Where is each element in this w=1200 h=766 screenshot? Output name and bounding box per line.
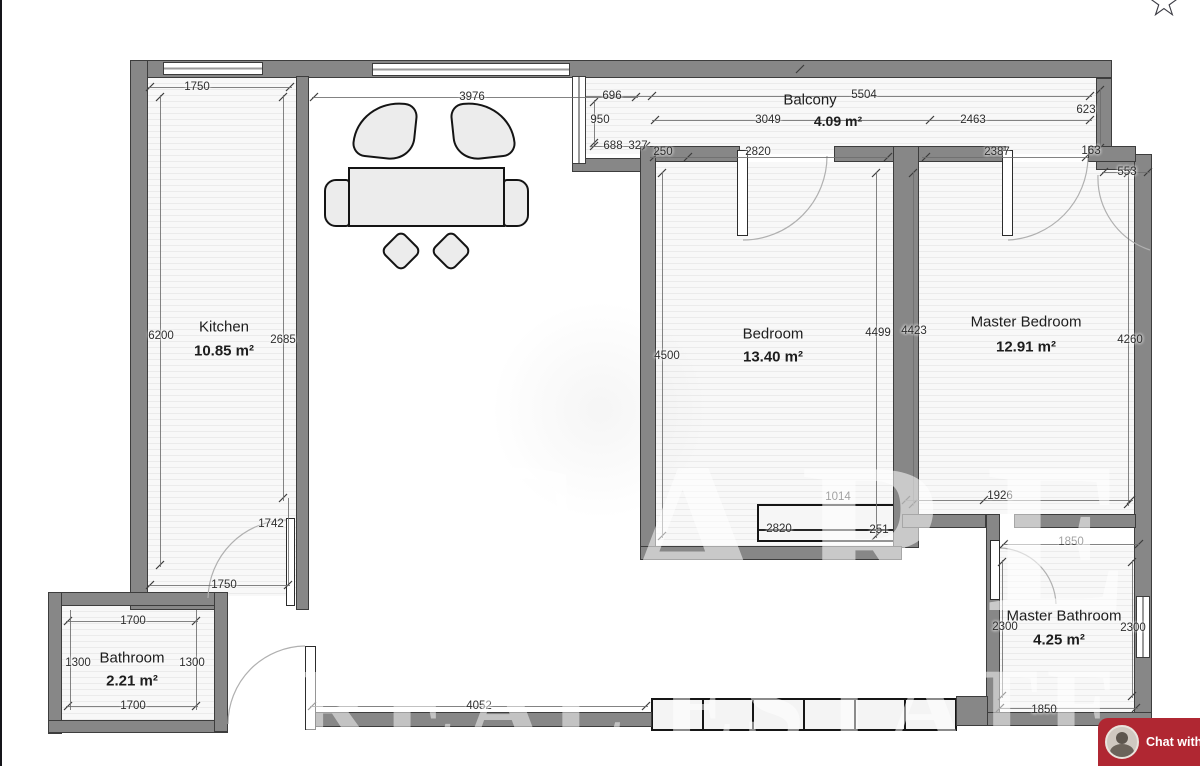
dim-label: 1850 (1031, 704, 1057, 716)
chat-label: Chat with (1146, 735, 1200, 749)
dim-label: 688 (603, 140, 622, 152)
room-label-bathroom: Bathroom (99, 650, 164, 667)
bedroom-door-leaf (737, 150, 748, 236)
dim-label: 1300 (179, 657, 205, 669)
master-bedroom-door-leaf (1002, 150, 1013, 236)
dim-label: 1742 (258, 518, 284, 530)
room-label-balcony: Balcony (783, 92, 836, 109)
wall-bath-bottom (48, 720, 228, 733)
dim-label: 1300 (65, 657, 91, 669)
room-area-master-bathroom: 4.25 m² (1033, 632, 1085, 649)
wall-hall-bottom (308, 712, 652, 727)
fan-chair-right (449, 98, 517, 162)
wall-master-bottom-b (1014, 514, 1136, 528)
wall-top (130, 60, 1112, 78)
fan-chair-left (351, 98, 419, 162)
faint-watermark-blob (495, 295, 705, 525)
dim-label: 4423 (901, 325, 927, 337)
floor-master-bathroom (1000, 546, 1136, 712)
dim-label: 1750 (184, 81, 210, 93)
armchair-left (324, 179, 350, 227)
dim-label: 1014 (825, 491, 851, 503)
dim-label: 1700 (120, 700, 146, 712)
stool-left (380, 230, 422, 272)
balcony-door-window (572, 76, 586, 164)
wall-kitchen-left (130, 60, 148, 608)
dim-label: 163 (1081, 145, 1100, 157)
hall-wardrobe (651, 698, 957, 731)
wall-kitchen-living-divider (296, 76, 309, 610)
dim-label: 250 (653, 146, 672, 158)
dim-label: 1700 (120, 615, 146, 627)
dim-label: 5504 (851, 89, 877, 101)
dim-label: 4260 (1117, 334, 1143, 346)
mbath-door-leaf (990, 540, 1000, 600)
room-area-master-bedroom: 12.91 m² (996, 339, 1056, 356)
wall-master-bottom-a (902, 514, 986, 528)
screen-edge-artifact (0, 0, 2, 766)
dim-label: 2820 (745, 146, 771, 158)
living-window (372, 63, 570, 76)
dim-label: 251 (869, 524, 888, 536)
room-area-bedroom: 13.40 m² (743, 349, 803, 366)
dim-label: 327 (628, 140, 647, 152)
dim-label: 1850 (1058, 536, 1084, 548)
wall-bedroom-bottom (640, 546, 902, 560)
dim-label: 2387 (984, 146, 1010, 158)
dim-label: 3049 (755, 114, 781, 126)
wall-between-bedrooms (893, 146, 919, 548)
room-label-bedroom: Bedroom (743, 326, 804, 343)
stool-right (430, 230, 472, 272)
room-area-bathroom: 2.21 m² (106, 673, 158, 690)
dim-label: 2685 (270, 334, 296, 346)
dim-label: 6200 (148, 330, 174, 342)
dim-label: 2463 (960, 114, 986, 126)
entry-door-leaf (305, 646, 316, 730)
dim-label: 623 (1076, 104, 1095, 116)
room-area-kitchen: 10.85 m² (194, 343, 254, 360)
agent-avatar (1105, 725, 1139, 759)
dim-label: 2820 (766, 523, 792, 535)
room-label-master-bedroom: Master Bedroom (971, 314, 1082, 331)
dining-table (348, 167, 505, 227)
room-label-master-bathroom: Master Bathroom (1006, 608, 1121, 625)
chat-widget[interactable]: Chat with (1098, 718, 1200, 766)
dim-label: 4500 (654, 350, 680, 362)
dim-label: 2300 (1120, 622, 1146, 634)
room-label-kitchen: Kitchen (199, 319, 249, 336)
wall-bath-right (214, 592, 228, 732)
favorite-star-icon[interactable]: ☆ (1146, 0, 1182, 23)
dim-label: 696 (602, 90, 621, 102)
dim-label: 4499 (865, 327, 891, 339)
wall-bath-top (48, 592, 228, 606)
armchair-right (503, 179, 529, 227)
wall-stub-wardrobe (956, 696, 988, 726)
dim-label: 1926 (987, 490, 1013, 502)
dim-label: 1750 (211, 579, 237, 591)
dim-label: 4052 (466, 700, 492, 712)
room-area-balcony: 4.09 m² (814, 113, 862, 129)
floor-plan-page: 1750 3976 696 5504 950 3049 2463 623 688… (0, 0, 1200, 766)
wall-bath-left (48, 592, 62, 734)
dim-label: 3976 (459, 91, 485, 103)
dim-label: 553 (1117, 166, 1136, 178)
wall-balcony-bottom-b (834, 146, 1006, 162)
dim-label: 950 (590, 114, 609, 126)
kitchen-window (163, 62, 263, 75)
